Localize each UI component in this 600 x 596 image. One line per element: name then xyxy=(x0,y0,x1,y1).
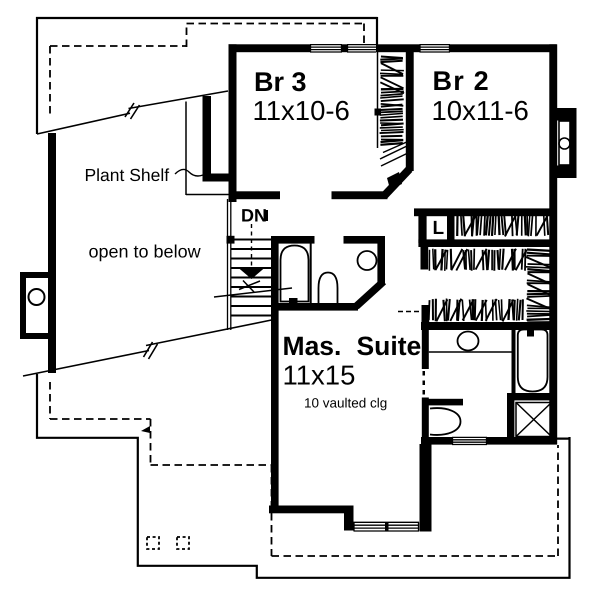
svg-text:11x15: 11x15 xyxy=(282,359,355,390)
svg-text:10x11-6: 10x11-6 xyxy=(431,95,528,126)
svg-text:Br 3: Br 3 xyxy=(254,67,307,97)
svg-text:L: L xyxy=(432,218,444,239)
svg-text:Br 2: Br 2 xyxy=(432,66,489,96)
svg-text:DN: DN xyxy=(241,205,267,225)
svg-text:10 vaulted clg: 10 vaulted clg xyxy=(304,395,387,410)
svg-text:Plant Shelf: Plant Shelf xyxy=(84,165,169,185)
svg-text:11x10-6: 11x10-6 xyxy=(252,95,349,126)
svg-text:Suite: Suite xyxy=(356,331,421,361)
svg-text:Mas.: Mas. xyxy=(282,331,341,361)
svg-text:open to below: open to below xyxy=(88,241,201,261)
